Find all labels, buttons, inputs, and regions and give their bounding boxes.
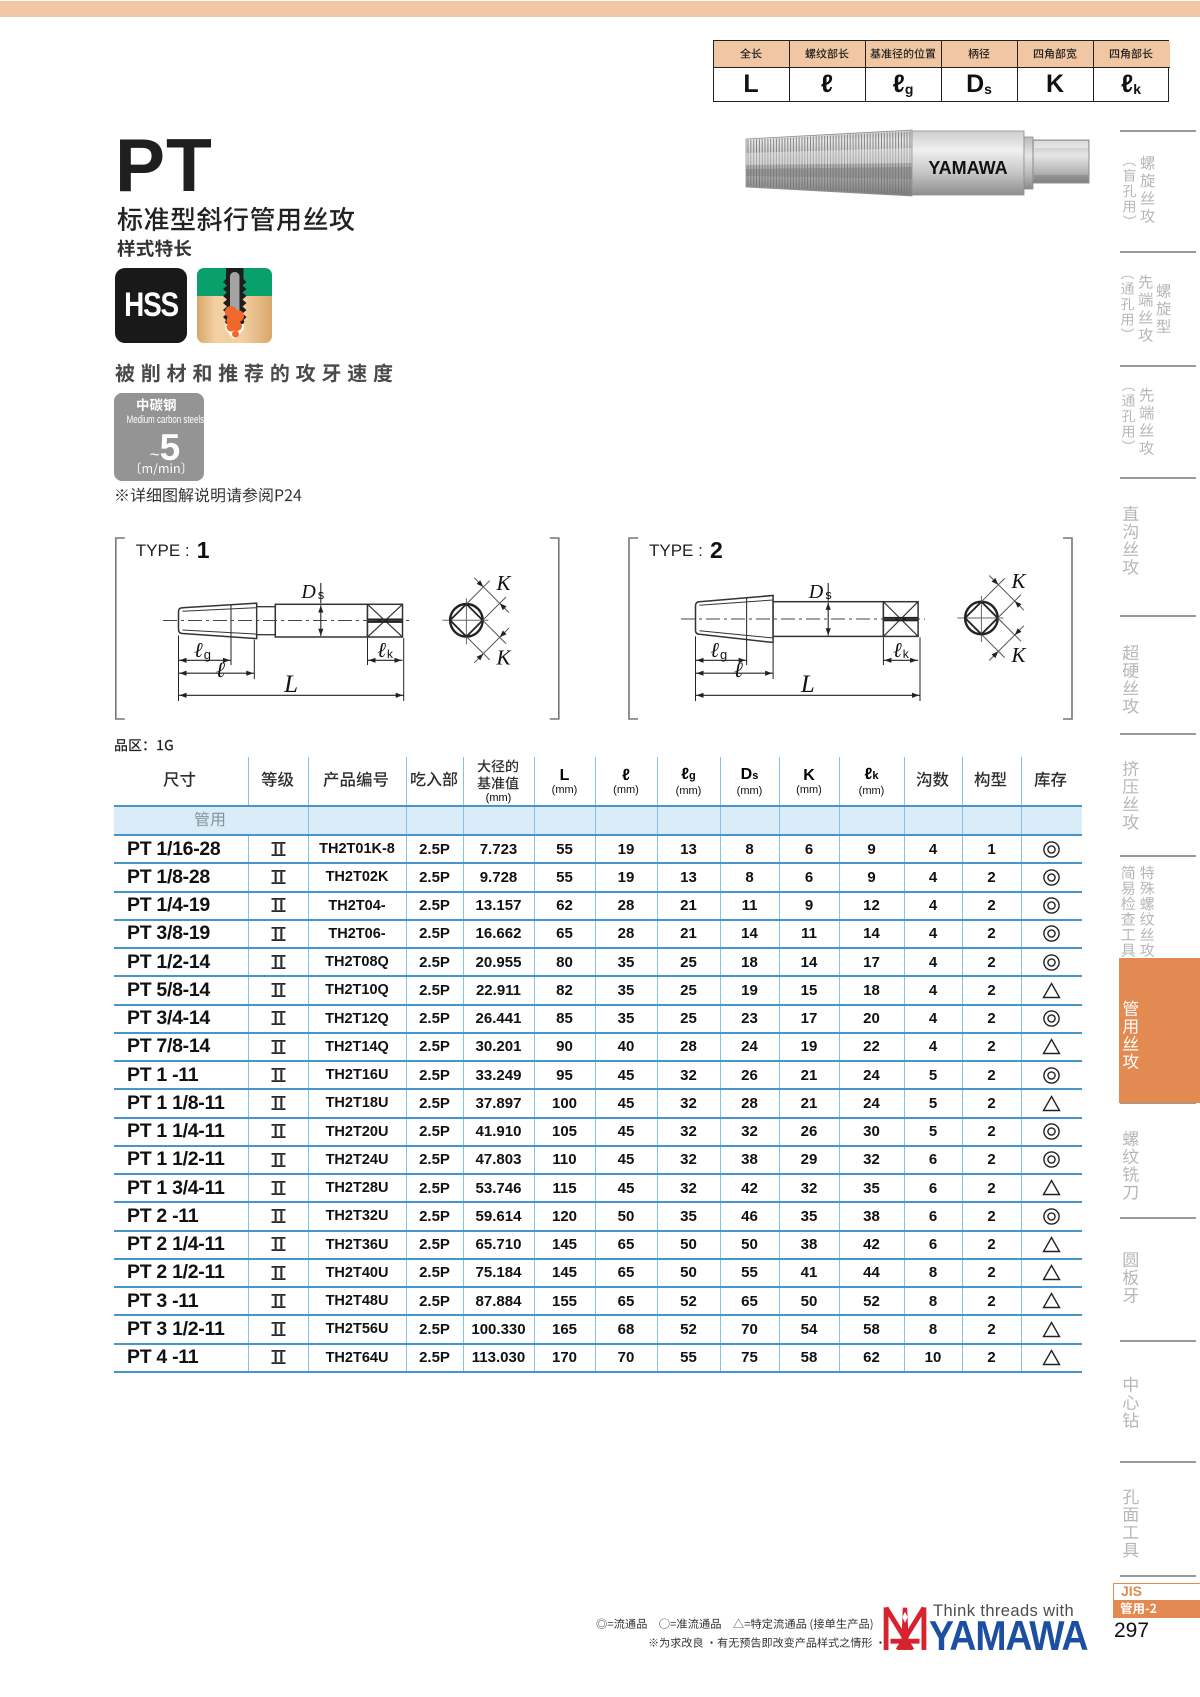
svg-text:s: s xyxy=(318,587,325,602)
svg-text:ℓ: ℓ xyxy=(734,657,744,682)
svg-text:K: K xyxy=(495,571,511,595)
svg-text:g: g xyxy=(204,647,211,662)
svg-text:ℓ: ℓ xyxy=(216,657,226,682)
svg-text:2: 2 xyxy=(710,537,723,563)
svg-text:D: D xyxy=(300,581,316,603)
svg-text:k: k xyxy=(387,647,394,661)
svg-text:L: L xyxy=(800,671,815,698)
svg-text:K: K xyxy=(1010,569,1026,593)
svg-text:ℓ: ℓ xyxy=(377,638,386,662)
svg-text:TYPE :: TYPE : xyxy=(136,541,190,560)
svg-text:ℓ: ℓ xyxy=(194,638,203,662)
svg-text:L: L xyxy=(283,671,298,698)
svg-text:K: K xyxy=(495,645,511,669)
svg-text:TYPE :: TYPE : xyxy=(649,541,703,560)
svg-text:K: K xyxy=(1010,643,1026,667)
svg-text:ℓ: ℓ xyxy=(893,638,902,662)
svg-text:k: k xyxy=(903,647,910,661)
svg-text:s: s xyxy=(825,587,832,602)
svg-text:1: 1 xyxy=(197,537,210,563)
svg-text:g: g xyxy=(720,647,727,662)
svg-text:ℓ: ℓ xyxy=(710,638,719,662)
svg-text:D: D xyxy=(808,581,824,603)
svg-text:YAMAWA: YAMAWA xyxy=(928,158,1007,178)
